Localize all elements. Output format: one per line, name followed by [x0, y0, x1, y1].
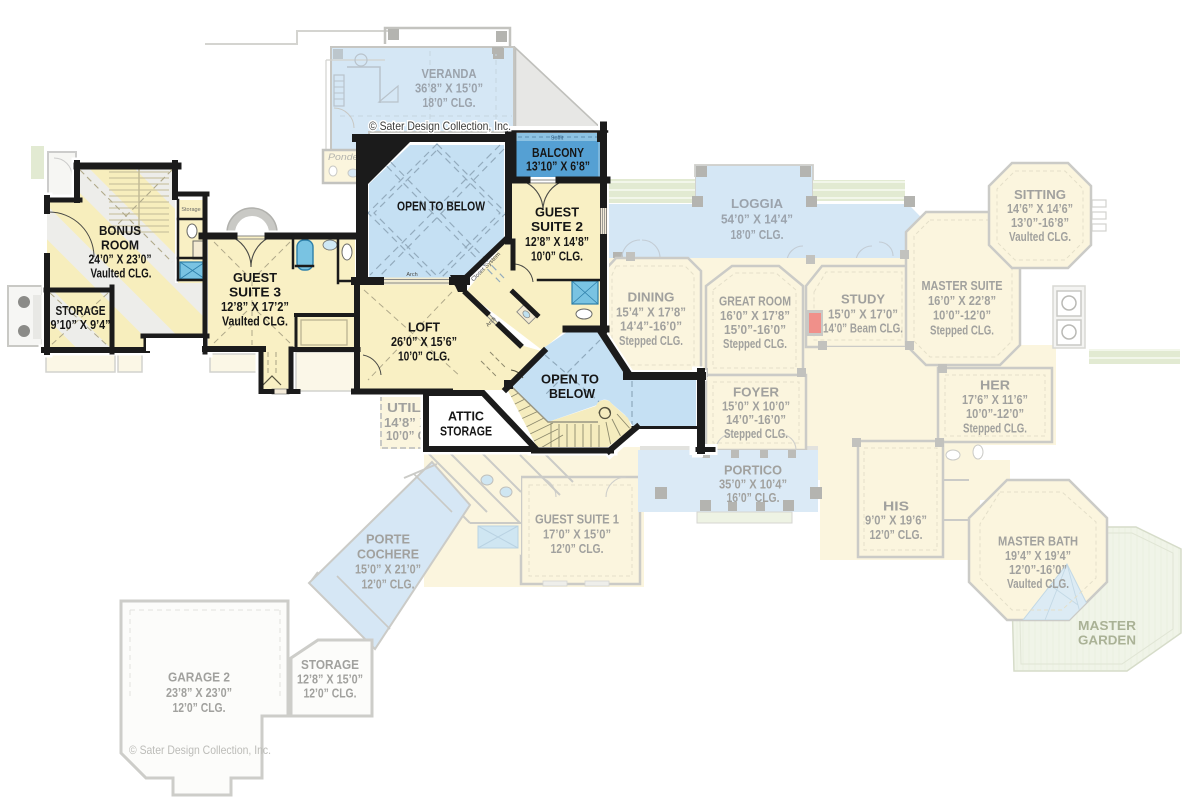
svg-text:FOYER: FOYER: [733, 385, 780, 400]
svg-text:© Sater Design Collection, Inc: © Sater Design Collection, Inc.: [369, 119, 511, 133]
svg-text:15’0” X 17’0”: 15’0” X 17’0”: [828, 307, 898, 322]
svg-text:OPEN TO BELOW: OPEN TO BELOW: [397, 200, 485, 214]
svg-text:HER: HER: [980, 378, 1011, 393]
svg-text:12’8” X 14’8”: 12’8” X 14’8”: [525, 235, 589, 249]
svg-text:Vaulted CLG.: Vaulted CLG.: [1009, 229, 1071, 244]
svg-text:23’8” X 23’0”: 23’8” X 23’0”: [166, 685, 232, 700]
svg-text:18’0” CLG.: 18’0” CLG.: [731, 227, 784, 242]
svg-text:GREAT ROOM: GREAT ROOM: [719, 294, 791, 309]
svg-text:16’0” X 22’8”: 16’0” X 22’8”: [928, 293, 996, 308]
svg-text:GARDEN: GARDEN: [1078, 633, 1136, 648]
svg-text:Stepped CLG.: Stepped CLG.: [930, 323, 994, 338]
svg-text:17’6” X 11’6”: 17’6” X 11’6”: [962, 392, 1028, 407]
svg-text:MASTER SUITE: MASTER SUITE: [922, 278, 1003, 293]
svg-text:PORTICO: PORTICO: [724, 463, 782, 478]
svg-text:BALCONY: BALCONY: [532, 146, 585, 160]
svg-text:Vaulted CLG.: Vaulted CLG.: [1007, 576, 1069, 591]
svg-text:MASTER: MASTER: [1078, 618, 1137, 633]
svg-text:15’0”-16’0”: 15’0”-16’0”: [724, 322, 786, 337]
svg-text:9’0” X 19’6”: 9’0” X 19’6”: [865, 513, 927, 528]
svg-text:10’0”-12’0”: 10’0”-12’0”: [933, 308, 991, 323]
svg-text:16’0” X 17’8”: 16’0” X 17’8”: [720, 308, 790, 323]
svg-text:SITTING: SITTING: [1014, 187, 1066, 202]
svg-text:24’0” X 23’0”: 24’0” X 23’0”: [89, 253, 152, 267]
svg-text:LOGGIA: LOGGIA: [731, 196, 784, 211]
svg-text:SUITE 3: SUITE 3: [229, 286, 281, 300]
svg-text:BONUS: BONUS: [99, 224, 141, 238]
svg-text:17’0” X 15’0”: 17’0” X 15’0”: [543, 527, 611, 542]
svg-text:STORAGE: STORAGE: [440, 425, 492, 439]
svg-text:12’0” CLG.: 12’0” CLG.: [870, 527, 923, 542]
svg-text:12’0” CLG.: 12’0” CLG.: [173, 700, 226, 715]
svg-text:LOFT: LOFT: [408, 321, 440, 335]
svg-text:MASTER BATH: MASTER BATH: [998, 534, 1078, 549]
svg-text:VERANDA: VERANDA: [422, 66, 478, 81]
svg-text:STORAGE: STORAGE: [56, 304, 106, 318]
svg-text:12’0”-16’0”: 12’0”-16’0”: [1009, 562, 1067, 577]
svg-text:Storage: Storage: [181, 207, 200, 213]
svg-text:Soffit: Soffit: [551, 136, 564, 142]
svg-text:COCHERE: COCHERE: [357, 547, 419, 562]
svg-text:Vaulted CLG.: Vaulted CLG.: [91, 267, 152, 281]
svg-text:10’0” CLG.: 10’0” CLG.: [398, 350, 450, 364]
svg-text:13’0”-16’8”: 13’0”-16’8”: [1011, 215, 1069, 230]
svg-text:OPEN TO: OPEN TO: [541, 373, 599, 387]
svg-text:GARAGE 2: GARAGE 2: [168, 670, 230, 685]
svg-text:Stepped CLG.: Stepped CLG.: [619, 333, 683, 348]
svg-text:18’0” CLG.: 18’0” CLG.: [423, 95, 476, 110]
svg-text:10’0” CLG.: 10’0” CLG.: [531, 250, 583, 264]
svg-text:GUEST SUITE 1: GUEST SUITE 1: [535, 512, 619, 527]
svg-text:12’0” CLG.: 12’0” CLG.: [362, 577, 415, 592]
svg-text:Vaulted CLG.: Vaulted CLG.: [222, 315, 288, 329]
svg-text:15’4” X 17’8”: 15’4” X 17’8”: [616, 305, 686, 320]
svg-text:ATTIC: ATTIC: [448, 410, 484, 424]
svg-text:14’0”-16’0”: 14’0”-16’0”: [726, 412, 786, 427]
svg-text:36’8” X 15’0”: 36’8” X 15’0”: [415, 81, 483, 96]
svg-text:12’0” CLG.: 12’0” CLG.: [551, 541, 604, 556]
svg-text:26’0” X 15’6”: 26’0” X 15’6”: [391, 335, 457, 349]
svg-text:14’6” X 14’6”: 14’6” X 14’6”: [1007, 201, 1073, 216]
svg-text:© Sater Design Collection, Inc: © Sater Design Collection, Inc.: [129, 743, 271, 757]
svg-text:14’0” Beam CLG.: 14’0” Beam CLG.: [823, 321, 903, 336]
svg-text:54’0” X 14’4”: 54’0” X 14’4”: [721, 212, 793, 227]
svg-text:14’4”-16’0”: 14’4”-16’0”: [620, 319, 682, 334]
svg-text:10’0”-12’0”: 10’0”-12’0”: [966, 406, 1024, 421]
svg-text:12’0” CLG.: 12’0” CLG.: [304, 686, 357, 701]
svg-text:PORTE: PORTE: [366, 532, 410, 547]
svg-text:Stepped CLG.: Stepped CLG.: [723, 336, 787, 351]
svg-text:12’8” X 15’0”: 12’8” X 15’0”: [297, 672, 363, 687]
svg-text:Stepped CLG.: Stepped CLG.: [963, 421, 1027, 436]
svg-text:10’0” C: 10’0” C: [386, 428, 427, 443]
svg-text:STUDY: STUDY: [841, 292, 885, 307]
svg-text:ROOM: ROOM: [101, 239, 139, 253]
svg-text:GUEST: GUEST: [233, 271, 277, 285]
svg-text:9’10” X 9’4”: 9’10” X 9’4”: [51, 318, 111, 332]
svg-text:BELOW: BELOW: [549, 387, 595, 401]
svg-text:12’8” X 17’2”: 12’8” X 17’2”: [221, 300, 289, 314]
svg-text:Stepped CLG.: Stepped CLG.: [724, 426, 788, 441]
svg-text:HIS: HIS: [883, 499, 909, 514]
svg-text:13’10” X 6’8”: 13’10” X 6’8”: [526, 160, 590, 174]
svg-text:Arch: Arch: [406, 272, 417, 278]
svg-text:STORAGE: STORAGE: [301, 657, 359, 672]
svg-text:SUITE 2: SUITE 2: [531, 220, 583, 234]
svg-text:15’0” X 21’0”: 15’0” X 21’0”: [355, 562, 421, 577]
svg-text:DINING: DINING: [628, 290, 675, 305]
svg-text:UTILI: UTILI: [387, 400, 425, 415]
svg-text:16’0” CLG.: 16’0” CLG.: [727, 490, 780, 505]
svg-text:GUEST: GUEST: [535, 206, 579, 220]
svg-text:19’4” X 19’4”: 19’4” X 19’4”: [1005, 548, 1071, 563]
